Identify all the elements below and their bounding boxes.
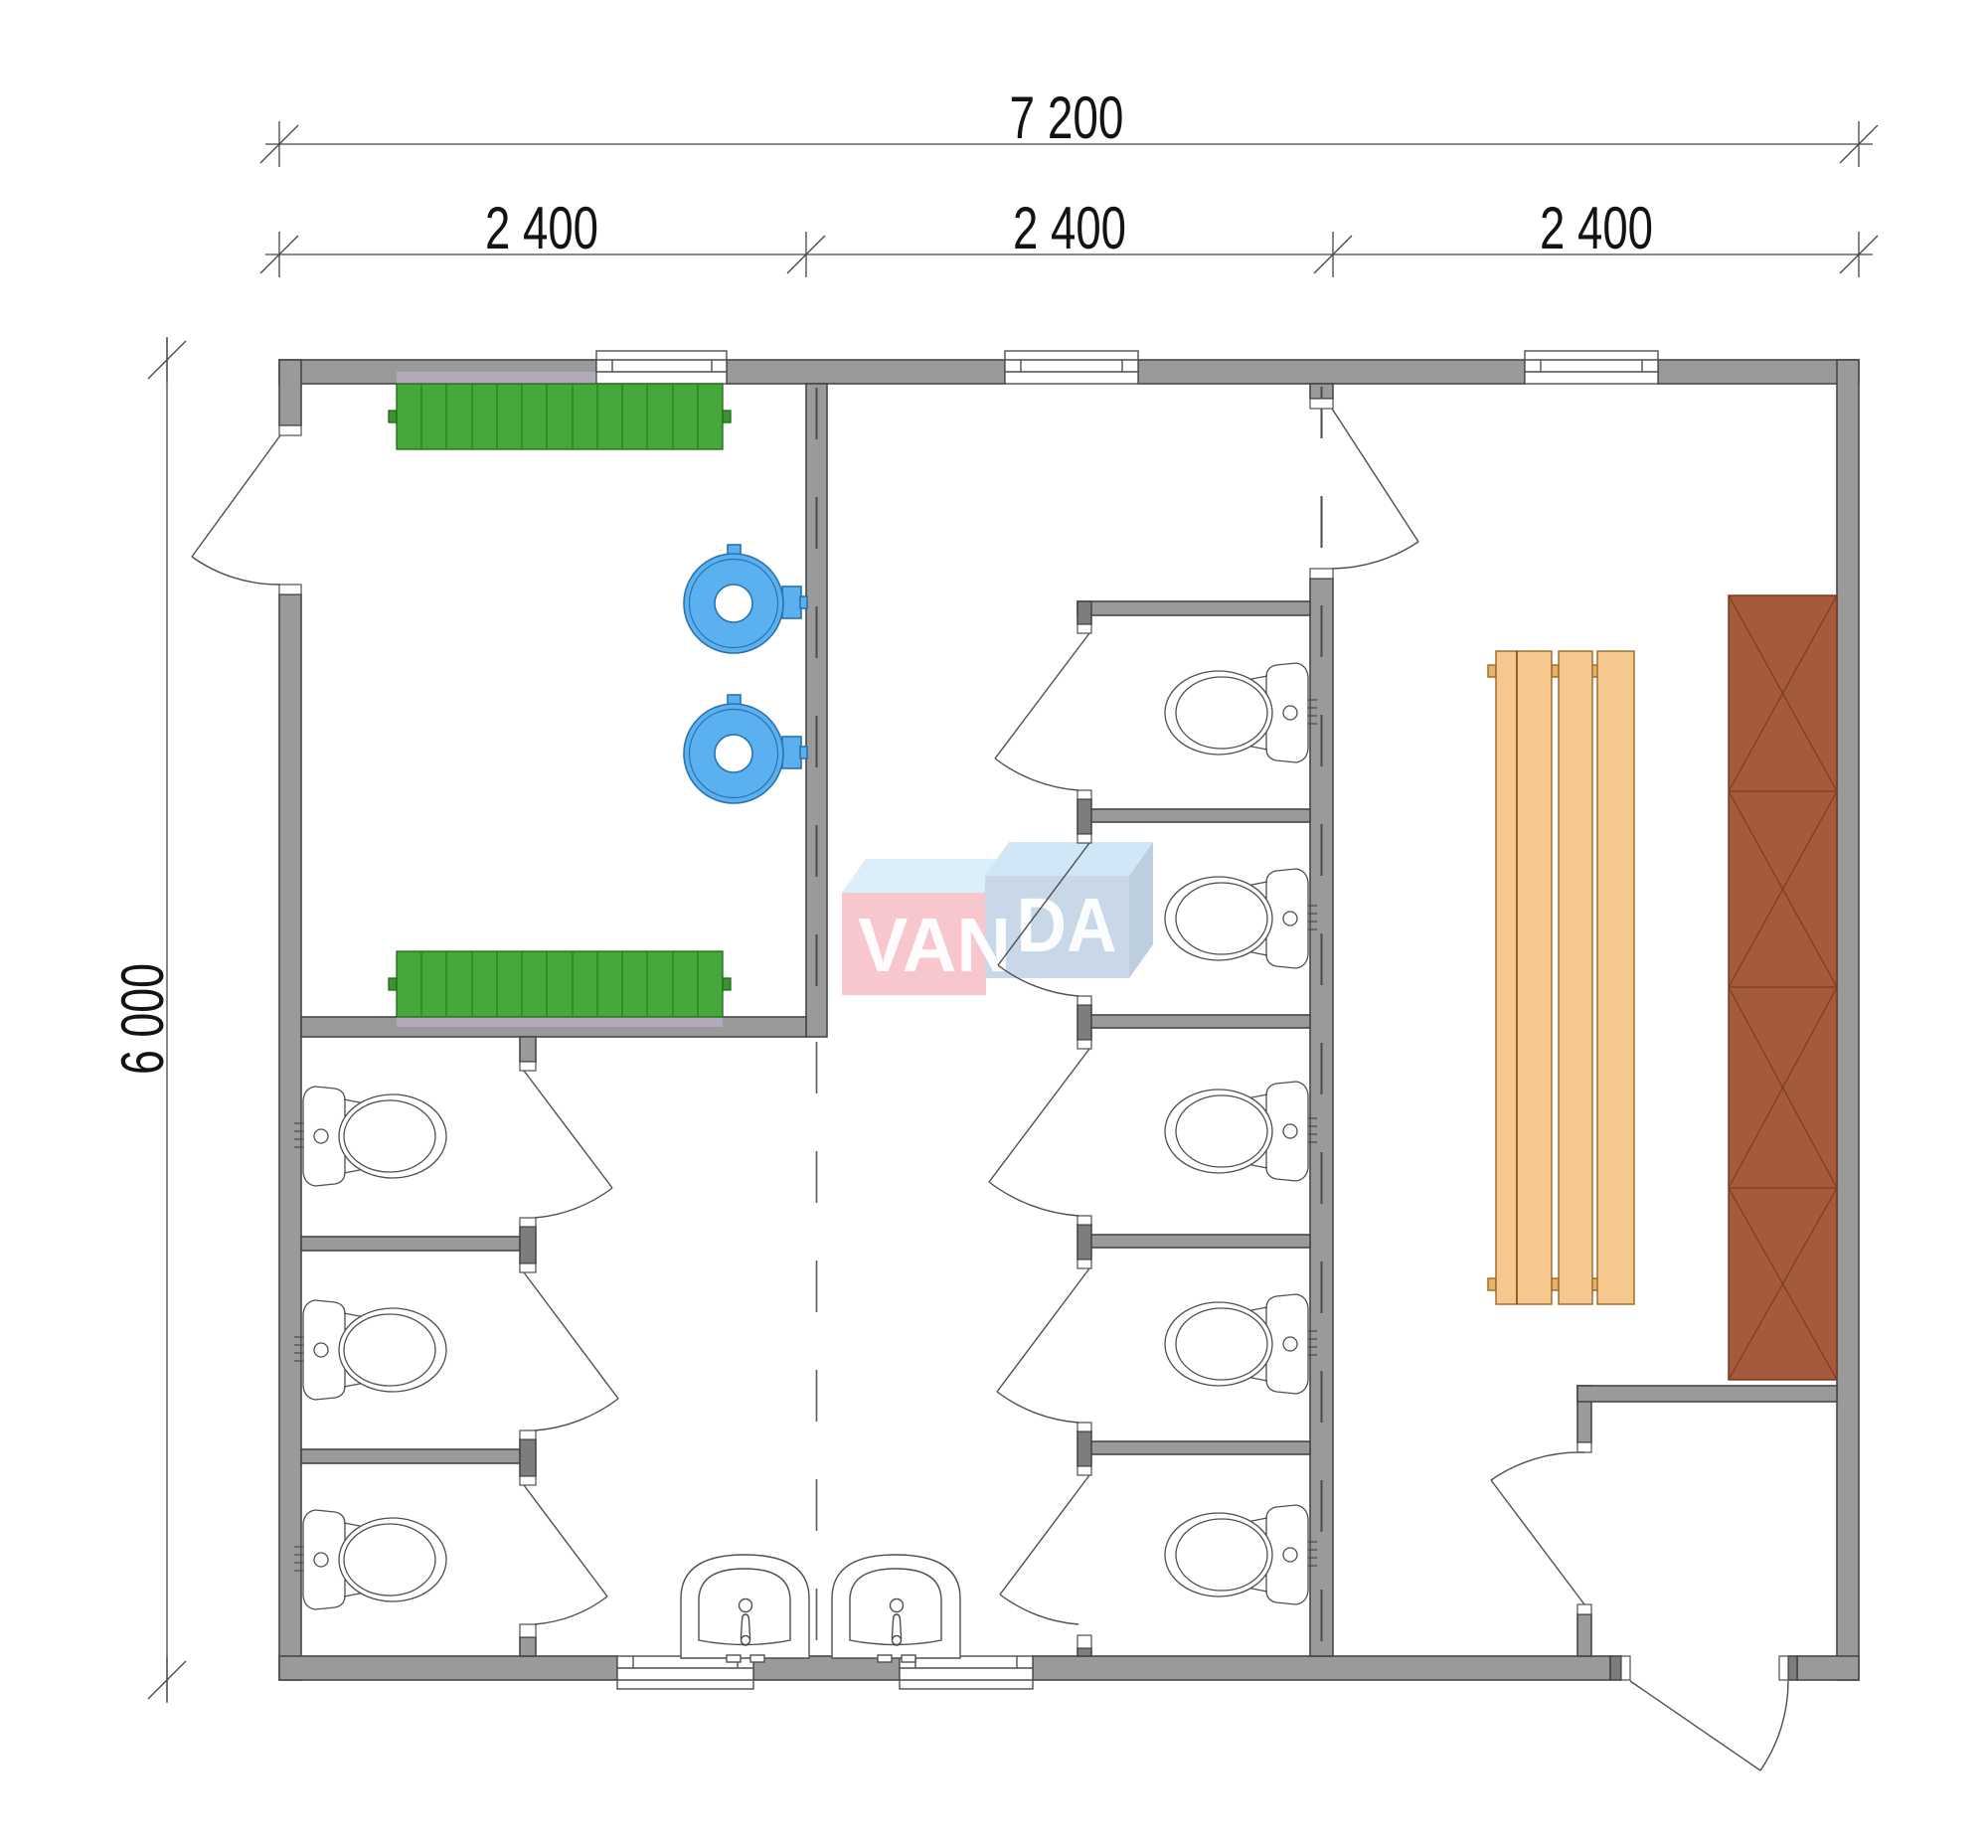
svg-text:7 200: 7 200 xyxy=(1010,84,1124,151)
svg-text:2 400: 2 400 xyxy=(485,195,598,261)
svg-text:2 400: 2 400 xyxy=(1013,195,1126,261)
svg-text:6 000: 6 000 xyxy=(109,963,176,1075)
svg-text:VAN: VAN xyxy=(858,903,1011,988)
svg-text:DA: DA xyxy=(1017,883,1117,968)
svg-text:2 400: 2 400 xyxy=(1540,195,1653,261)
